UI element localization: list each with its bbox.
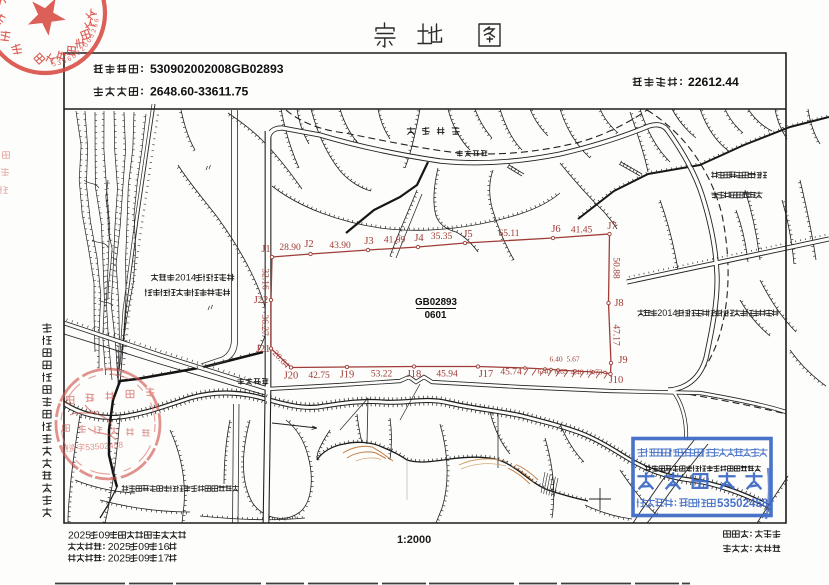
- svg-text:J2: J2: [304, 239, 313, 250]
- svg-text:J7: J7: [607, 221, 616, 232]
- svg-text:42.75: 42.75: [308, 371, 330, 381]
- svg-text:6.40: 6.40: [537, 367, 550, 376]
- svg-text:36.27: 36.27: [259, 314, 269, 336]
- svg-text:45.94: 45.94: [436, 370, 458, 380]
- svg-text:GB02893: GB02893: [415, 297, 457, 308]
- svg-text:2014: 2014: [175, 273, 197, 284]
- svg-text:43.90: 43.90: [329, 241, 351, 251]
- svg-text:0601: 0601: [425, 310, 447, 321]
- svg-text:47.17: 47.17: [611, 324, 621, 346]
- svg-text:65.11: 65.11: [498, 229, 519, 239]
- svg-text:530902002008GB02893: 530902002008GB02893: [150, 62, 284, 76]
- svg-text:53502458: 53502458: [717, 498, 769, 510]
- svg-text:41.45: 41.45: [571, 226, 593, 236]
- svg-text:2648.60-33611.75: 2648.60-33611.75: [150, 85, 248, 99]
- svg-text:4.48: 4.48: [570, 368, 583, 377]
- svg-text:19.73: 19.73: [586, 368, 603, 377]
- svg-text:2025: 2025: [68, 531, 91, 542]
- svg-text:J1: J1: [261, 244, 270, 255]
- svg-text:5.67: 5.67: [566, 355, 579, 364]
- svg-text:J22: J22: [254, 295, 269, 306]
- svg-text:28.90: 28.90: [279, 243, 301, 253]
- svg-text:41.09: 41.09: [384, 236, 406, 246]
- svg-text:16: 16: [158, 542, 170, 553]
- svg-text:09: 09: [138, 542, 150, 553]
- svg-text:2025: 2025: [108, 542, 131, 553]
- svg-text:J6: J6: [551, 224, 560, 235]
- svg-text:J19: J19: [340, 370, 355, 381]
- svg-text:50.88: 50.88: [611, 257, 621, 279]
- svg-text:1:2000: 1:2000: [397, 534, 431, 546]
- svg-text:J10: J10: [609, 375, 624, 386]
- svg-text:35.35: 35.35: [431, 232, 453, 242]
- svg-text:22612.44: 22612.44: [688, 75, 739, 89]
- svg-text:17: 17: [158, 554, 170, 565]
- svg-text:J21: J21: [256, 344, 271, 355]
- svg-text:09: 09: [138, 554, 150, 565]
- svg-text:09: 09: [99, 531, 111, 542]
- svg-text:6.40: 6.40: [549, 355, 562, 364]
- svg-text:J17: J17: [479, 369, 494, 380]
- svg-text:2025: 2025: [108, 554, 131, 565]
- svg-text:J5: J5: [463, 229, 472, 240]
- svg-text:2014: 2014: [657, 308, 677, 318]
- svg-text:J20: J20: [284, 371, 299, 382]
- svg-text:J18: J18: [407, 369, 422, 380]
- svg-text:J8: J8: [614, 298, 623, 309]
- svg-text:53.22: 53.22: [371, 370, 393, 380]
- svg-text:J4: J4: [414, 233, 424, 244]
- svg-text:J9: J9: [618, 355, 627, 366]
- svg-text:32.16: 32.16: [260, 268, 270, 290]
- svg-text:6.65: 6.65: [554, 367, 567, 376]
- svg-text:45.74: 45.74: [500, 368, 522, 378]
- svg-text:J3: J3: [364, 236, 373, 247]
